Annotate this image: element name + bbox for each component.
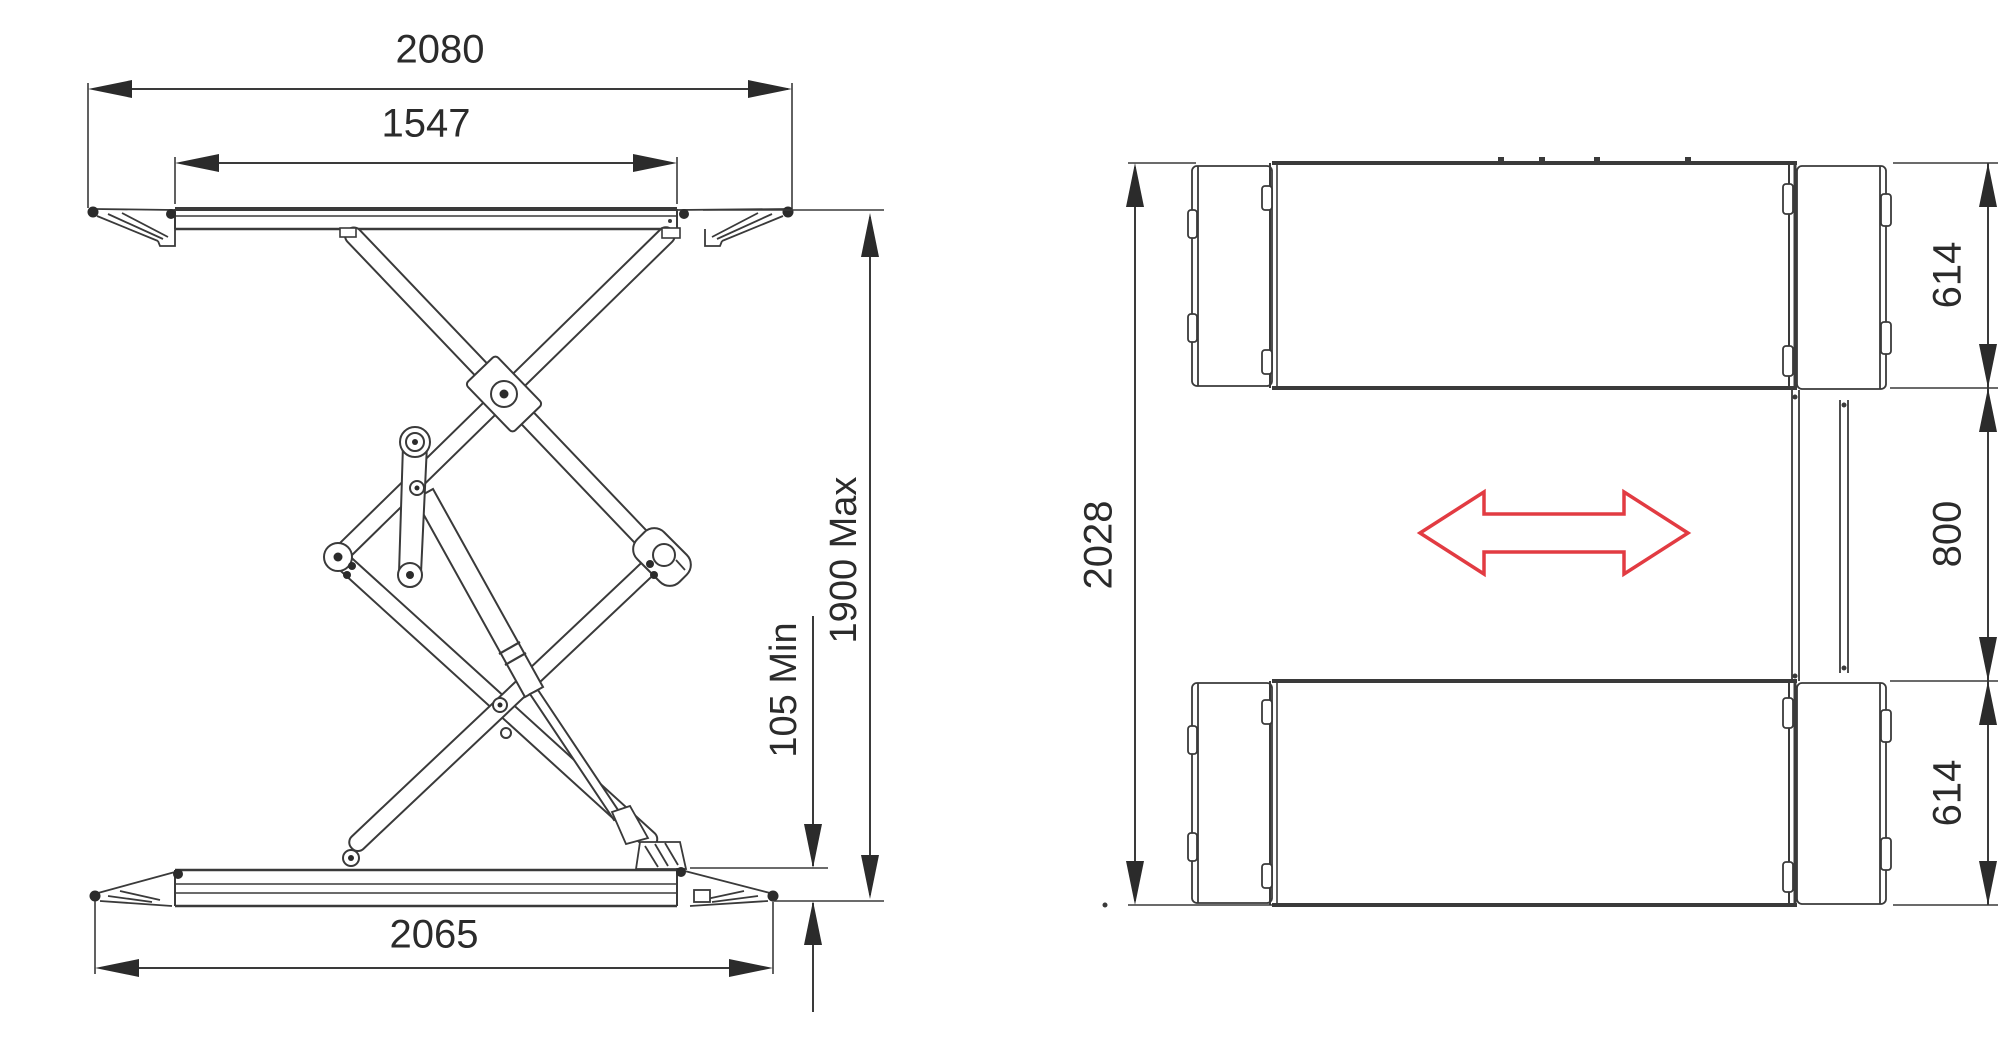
dim-min-height: 105 Min: [690, 616, 884, 1012]
dim-label-2080: 2080: [396, 28, 485, 72]
dim-label-2028: 2028: [1077, 501, 1121, 590]
right-foot-bracket: [636, 842, 686, 869]
stop-pin: [1594, 157, 1600, 163]
plan-top-platform: [1188, 157, 1891, 389]
technical-drawing-svg: 2080 1547: [0, 0, 2000, 1038]
side-view: 2080 1547: [88, 28, 885, 1012]
plan-side-rails: [1792, 390, 1848, 681]
scissor-mechanism: [324, 224, 697, 869]
plan-top-right-ramp: [1783, 166, 1891, 389]
stop-pin: [1685, 157, 1691, 163]
stop-pin: [1498, 157, 1504, 163]
dim-max-height: 1900 Max: [703, 210, 884, 899]
dim-label-105-min: 105 Min: [763, 622, 805, 757]
top-platform: [175, 209, 677, 229]
base-platform: [175, 868, 677, 906]
drawing-canvas: 2080 1547: [0, 0, 2000, 1038]
dim-overall-width: 2028: [1077, 163, 1290, 908]
dim-label-2065: 2065: [390, 913, 479, 957]
dim-label-614-top: 614: [1926, 242, 1970, 309]
dim-label-800: 800: [1926, 501, 1970, 568]
dim-track-and-gap: 614 800 614: [1890, 163, 1998, 905]
dim-label-1547: 1547: [382, 102, 471, 146]
drive-direction-arrow: [1420, 492, 1688, 574]
dim-platform-length: 1547: [175, 102, 677, 204]
stop-pin: [1539, 157, 1545, 163]
dim-label-1900-max: 1900 Max: [823, 477, 865, 644]
plan-bottom-right-ramp: [1783, 683, 1891, 904]
dim-base-length: 2065: [95, 901, 773, 977]
dim-label-614-bottom: 614: [1926, 760, 1970, 827]
left-foot-roller: [343, 850, 359, 866]
top-right-ramp-flap: [677, 207, 794, 247]
plan-view: 2028 614 800 614: [1077, 157, 1998, 908]
plan-bottom-left-ramp: [1188, 683, 1272, 903]
base-right-ramp-flap: [676, 867, 779, 906]
plan-bottom-platform: [1188, 681, 1891, 905]
base-left-ramp-flap: [90, 869, 184, 906]
plan-top-left-ramp: [1188, 166, 1272, 386]
top-left-ramp-flap: [88, 207, 177, 247]
